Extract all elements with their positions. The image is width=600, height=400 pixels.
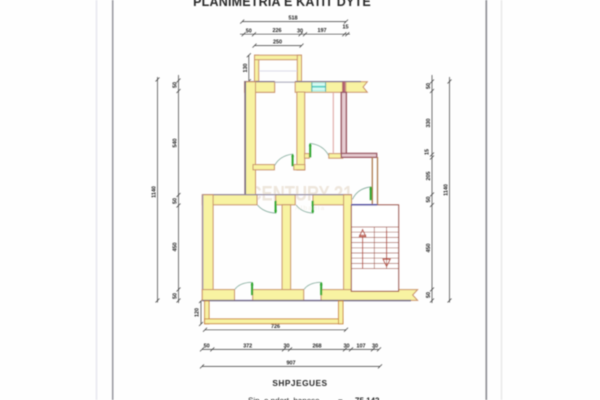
svg-text:30: 30 — [344, 344, 350, 350]
svg-text:907: 907 — [287, 361, 296, 367]
svg-text:540: 540 — [173, 139, 179, 148]
svg-text:=: = — [338, 397, 343, 400]
svg-text:330: 330 — [426, 119, 432, 128]
svg-text:50: 50 — [204, 344, 210, 350]
svg-text:30: 30 — [284, 344, 290, 350]
svg-text:205: 205 — [426, 172, 432, 181]
svg-text:PLANIMETRIA E KATIT DYTE: PLANIMETRIA E KATIT DYTE — [193, 0, 371, 9]
svg-text:268: 268 — [313, 344, 322, 350]
svg-text:50: 50 — [246, 29, 252, 35]
svg-text:50: 50 — [426, 197, 432, 203]
svg-text:450: 450 — [426, 244, 432, 253]
svg-text:30: 30 — [372, 344, 378, 350]
svg-text:130: 130 — [243, 64, 249, 73]
svg-text:1140: 1140 — [152, 186, 158, 198]
svg-text:250: 250 — [273, 40, 282, 46]
svg-text:372: 372 — [243, 344, 252, 350]
svg-text:30: 30 — [297, 29, 303, 35]
svg-text:120: 120 — [195, 308, 201, 317]
svg-text:1140: 1140 — [444, 184, 450, 196]
svg-text:50: 50 — [173, 293, 179, 299]
svg-text:15: 15 — [343, 24, 349, 30]
svg-text:75.142: 75.142 — [355, 397, 380, 400]
svg-text:SHPJEGUES: SHPJEGUES — [272, 378, 327, 388]
svg-text:226: 226 — [273, 28, 282, 34]
svg-text:50: 50 — [426, 83, 432, 89]
svg-text:107: 107 — [357, 344, 366, 350]
svg-text:50: 50 — [173, 198, 179, 204]
svg-text:450: 450 — [173, 243, 179, 252]
svg-text:15: 15 — [425, 149, 431, 155]
svg-text:197: 197 — [318, 28, 327, 34]
svg-text:50: 50 — [173, 82, 179, 88]
svg-text:518: 518 — [289, 16, 298, 22]
svg-text:726: 726 — [271, 324, 280, 330]
svg-text:50: 50 — [426, 292, 432, 298]
svg-text:Sip. e ndert. banese: Sip. e ndert. banese — [248, 397, 320, 400]
